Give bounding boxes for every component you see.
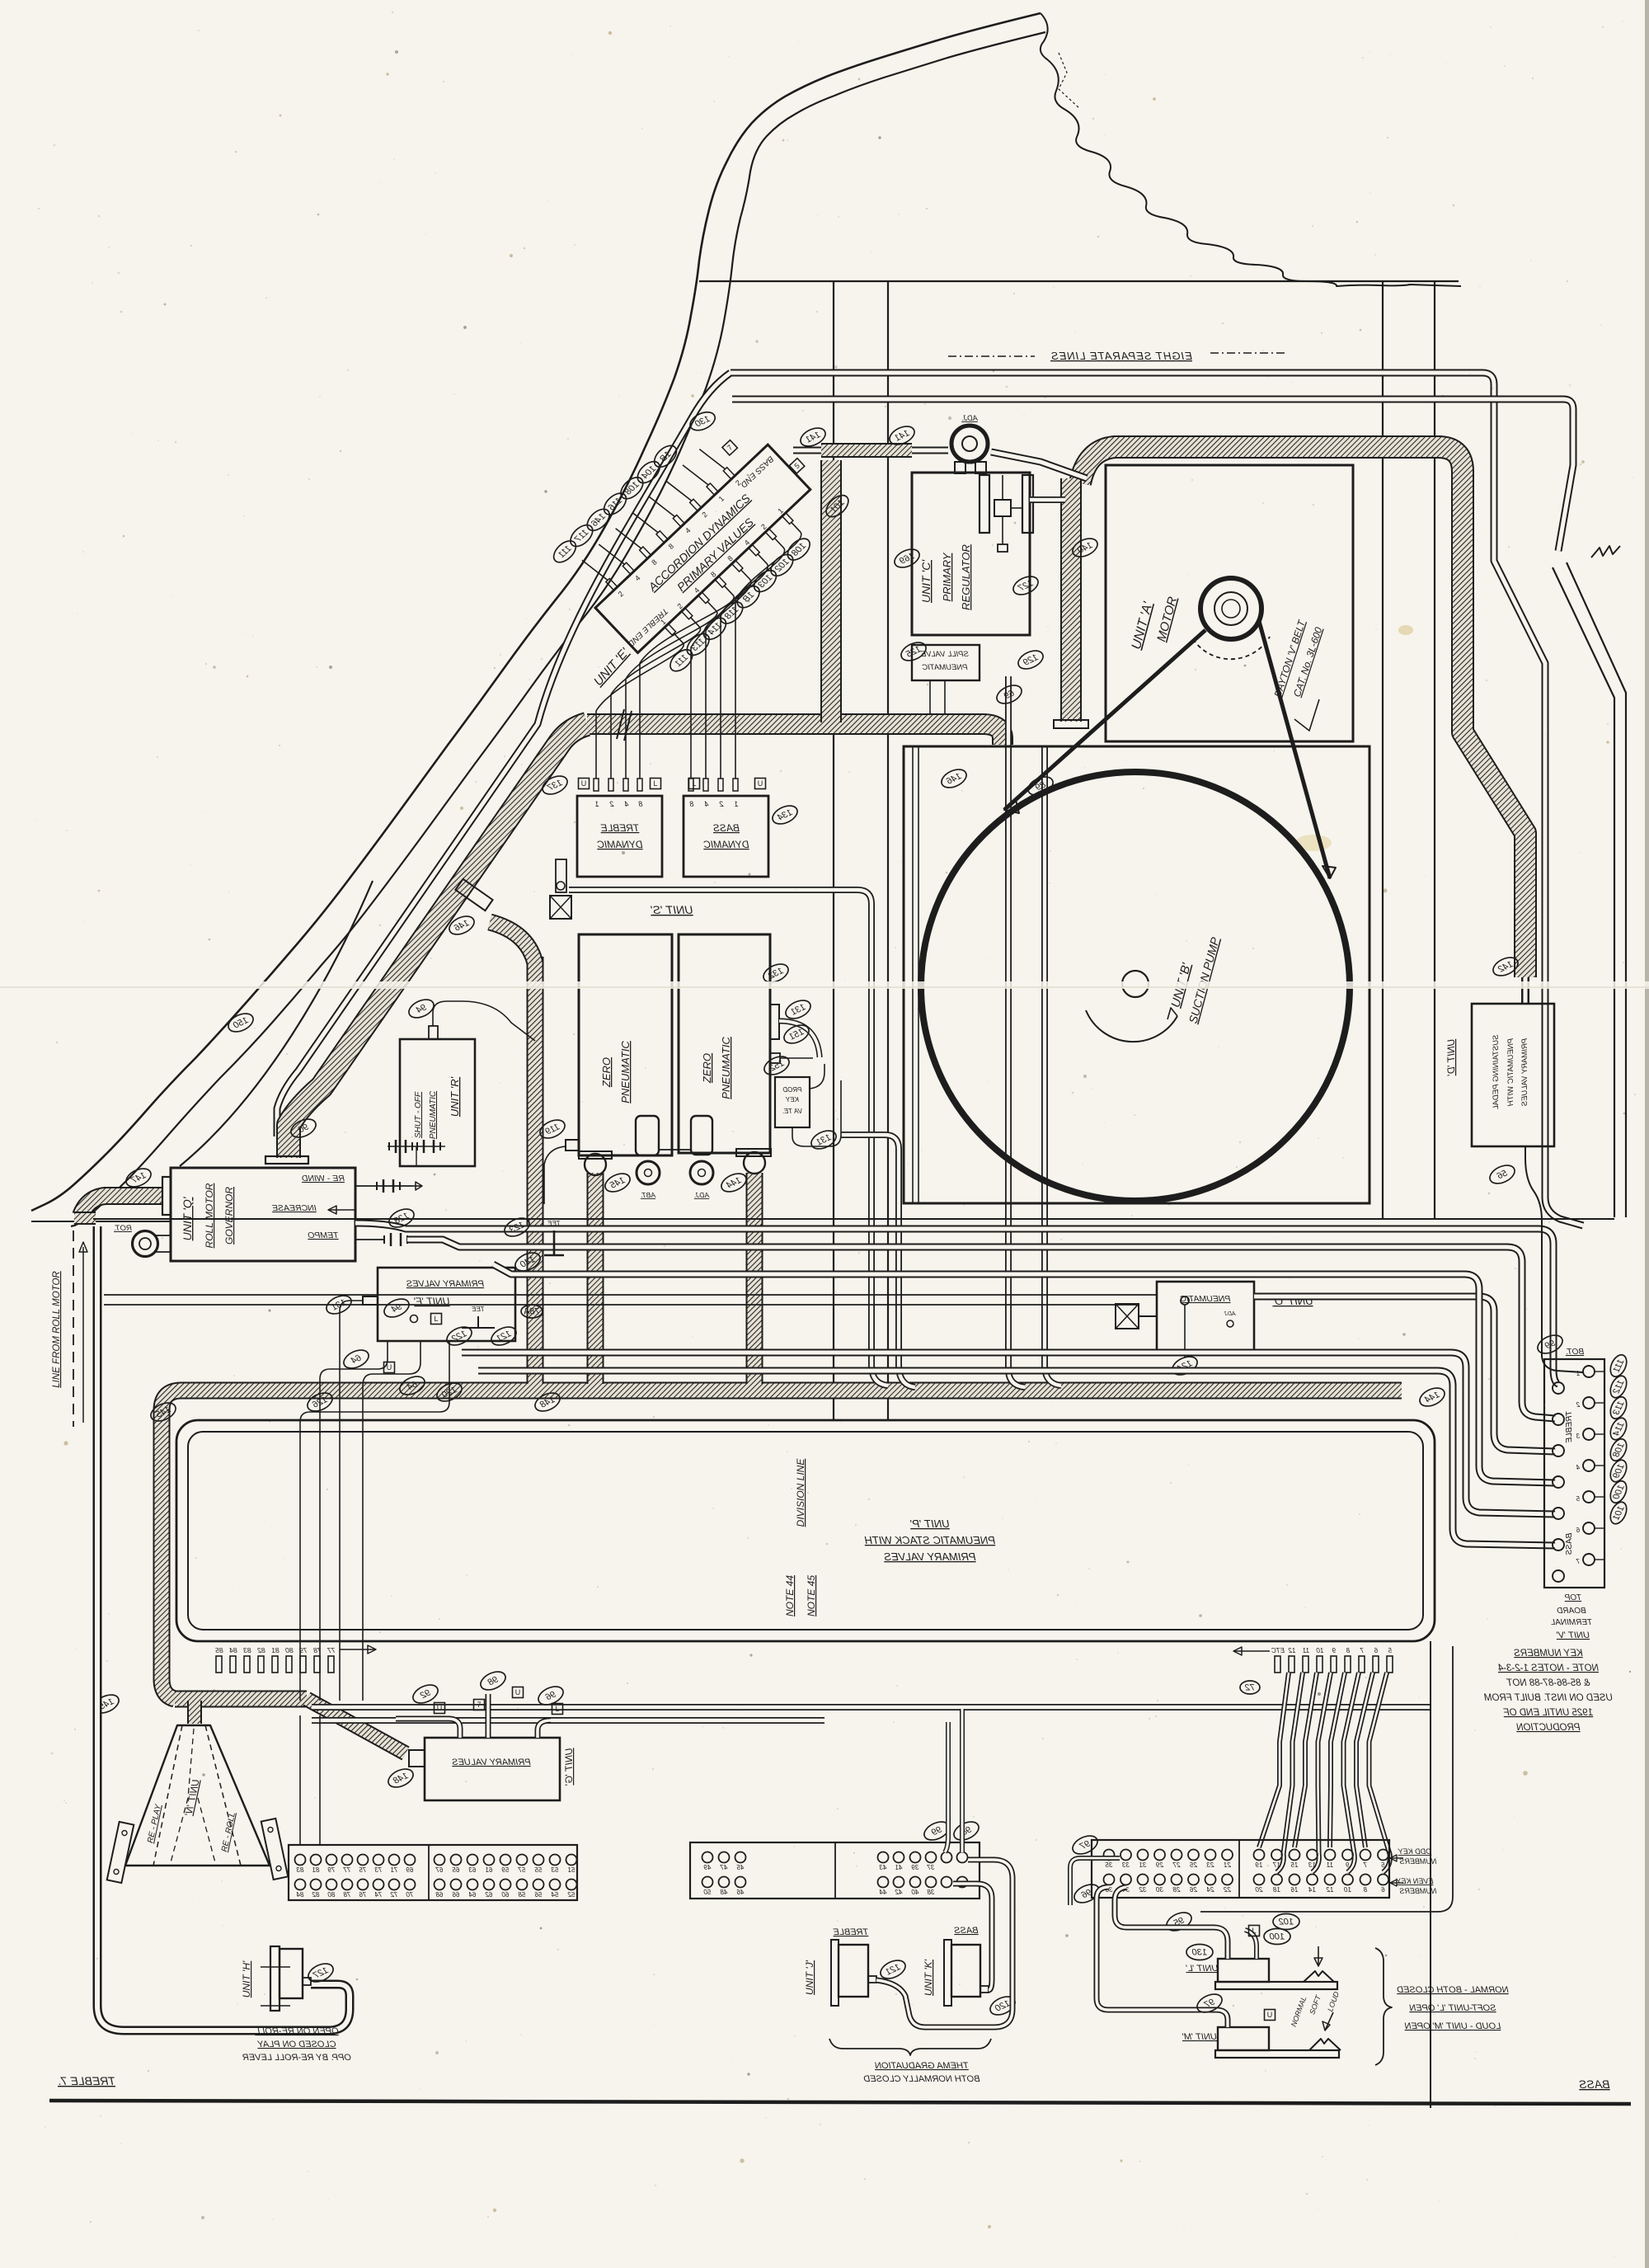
svg-text:ROLL MOTOR: ROLL MOTOR	[204, 1183, 215, 1248]
svg-text:INCREASE: INCREASE	[271, 1203, 317, 1213]
svg-text:9: 9	[1332, 1647, 1336, 1654]
svg-text:53: 53	[551, 1866, 558, 1874]
svg-text:72: 72	[1245, 1683, 1255, 1693]
svg-text:REGULATOR: REGULATOR	[960, 544, 972, 610]
svg-text:79: 79	[299, 1646, 308, 1654]
svg-text:31: 31	[1139, 1861, 1147, 1869]
svg-text:8: 8	[689, 800, 693, 808]
svg-text:5: 5	[1576, 1495, 1580, 1503]
svg-text:43: 43	[879, 1864, 886, 1871]
svg-text:U: U	[515, 1688, 521, 1696]
svg-text:UNIT 'P': UNIT 'P'	[910, 1517, 950, 1530]
svg-text:66: 66	[452, 1891, 459, 1899]
svg-text:ABT.: ABT.	[641, 1191, 656, 1199]
svg-text:63: 63	[468, 1866, 476, 1874]
svg-text:UNIT 'V': UNIT 'V'	[1556, 1630, 1590, 1640]
svg-text:PRIMARY VALVES: PRIMARY VALVES	[406, 1279, 484, 1289]
svg-text:78: 78	[343, 1891, 350, 1899]
svg-text:TEMPO: TEMPO	[308, 1230, 338, 1240]
svg-text:13: 13	[1308, 1861, 1316, 1869]
svg-text:68: 68	[435, 1891, 443, 1899]
svg-text:61: 61	[486, 1866, 493, 1874]
svg-text:UNIT 'C': UNIT 'C'	[919, 559, 933, 603]
svg-text:L: L	[555, 1705, 559, 1713]
svg-text:NOTE - NOTES 1-2-3-4: NOTE - NOTES 1-2-3-4	[1498, 1663, 1599, 1673]
svg-text:72: 72	[390, 1891, 397, 1899]
svg-text:24: 24	[1206, 1886, 1214, 1894]
svg-text:U: U	[581, 779, 587, 788]
svg-text:12: 12	[1288, 1647, 1295, 1654]
svg-text:60: 60	[501, 1891, 509, 1899]
svg-text:4: 4	[624, 800, 628, 808]
svg-text:56: 56	[534, 1891, 542, 1899]
svg-text:EVEN KEY: EVEN KEY	[1396, 1877, 1434, 1885]
svg-text:PNEUMATIC: PNEUMATIC	[619, 1041, 632, 1103]
svg-text:VA TE.: VA TE.	[782, 1108, 803, 1115]
svg-text:85: 85	[215, 1646, 223, 1654]
svg-text:SUSTAINING PEDAL: SUSTAINING PEDAL	[1492, 1034, 1501, 1109]
svg-text:2: 2	[609, 800, 614, 808]
svg-text:82: 82	[312, 1891, 319, 1899]
svg-text:28: 28	[1172, 1886, 1181, 1894]
svg-text:20: 20	[1255, 1886, 1263, 1894]
svg-text:100: 100	[1269, 1932, 1285, 1942]
svg-text:8: 8	[638, 800, 642, 808]
svg-text:32: 32	[1139, 1886, 1146, 1894]
svg-text:TREBLE 7.: TREBLE 7.	[58, 2074, 115, 2087]
svg-text:65: 65	[452, 1866, 459, 1874]
svg-text:UNIT 'K': UNIT 'K'	[923, 1959, 934, 1996]
svg-text:7: 7	[1363, 1861, 1367, 1869]
svg-text:RE - WIND: RE - WIND	[302, 1174, 345, 1183]
svg-text:81: 81	[271, 1646, 280, 1654]
svg-text:15: 15	[1290, 1861, 1298, 1869]
svg-text:82: 82	[257, 1646, 265, 1654]
svg-text:58: 58	[518, 1891, 525, 1899]
svg-text:83: 83	[296, 1866, 303, 1874]
svg-text:81: 81	[312, 1866, 320, 1874]
svg-text:41: 41	[895, 1864, 903, 1871]
svg-text:UNIT 'D': UNIT 'D'	[1445, 1039, 1457, 1076]
svg-text:45: 45	[736, 1864, 744, 1871]
svg-text:DYNAMIC: DYNAMIC	[597, 839, 643, 850]
svg-text:BASS: BASS	[713, 822, 740, 834]
svg-text:76: 76	[359, 1891, 366, 1899]
svg-text:35: 35	[1105, 1861, 1112, 1869]
svg-text:25: 25	[1190, 1861, 1198, 1869]
svg-text:130: 130	[1191, 1948, 1207, 1958]
svg-text:ADJ: ADJ	[1224, 1311, 1237, 1317]
svg-text:80: 80	[285, 1646, 294, 1654]
svg-text:PRODUCTION: PRODUCTION	[1516, 1723, 1581, 1733]
svg-text:EIGHT SEPARATE LINES: EIGHT SEPARATE LINES	[1050, 350, 1192, 362]
svg-text:38: 38	[927, 1889, 934, 1896]
svg-text:BOTH NORMALLY CLOSED: BOTH NORMALLY CLOSED	[863, 2074, 980, 2084]
svg-text:KEY: KEY	[785, 1096, 799, 1103]
svg-text:16: 16	[1290, 1886, 1298, 1894]
svg-text:BOARD: BOARD	[1557, 1607, 1586, 1616]
svg-text:52: 52	[567, 1891, 575, 1899]
svg-text:U: U	[758, 779, 763, 788]
svg-text:NORMAL - BOTH CLOSED: NORMAL - BOTH CLOSED	[1397, 1985, 1509, 1995]
svg-text:PRIMARY VALVES: PRIMARY VALVES	[884, 1550, 976, 1563]
svg-text:ZERO: ZERO	[701, 1053, 713, 1084]
svg-text:PNEUMATIC: PNEUMATIC	[429, 1090, 438, 1139]
svg-text:BASS: BASS	[1579, 2077, 1610, 2091]
svg-text:4: 4	[704, 800, 708, 808]
svg-text:7: 7	[477, 1701, 481, 1709]
svg-text:UNIT 'L': UNIT 'L'	[1186, 1964, 1219, 1974]
svg-text:UNIT 'G': UNIT 'G'	[563, 1748, 575, 1786]
svg-text:TREBLE: TREBLE	[833, 1927, 868, 1937]
svg-text:69: 69	[406, 1866, 413, 1874]
svg-text:48: 48	[720, 1889, 727, 1896]
svg-text:DIVISION LINE: DIVISION LINE	[795, 1458, 806, 1527]
svg-text:1: 1	[1576, 1370, 1580, 1377]
svg-text:UNIT 'R': UNIT 'R'	[449, 1076, 461, 1117]
svg-text:51: 51	[568, 1866, 576, 1874]
svg-text:UNIT 'J': UNIT 'J'	[804, 1960, 815, 1995]
svg-text:6: 6	[1576, 1527, 1580, 1534]
svg-text:2: 2	[1576, 1401, 1581, 1409]
svg-text:8: 8	[1363, 1886, 1367, 1894]
svg-text:GOVERNOR: GOVERNOR	[223, 1187, 235, 1245]
svg-text:PNEUMATIC: PNEUMATIC	[1180, 1294, 1230, 1304]
svg-text:10: 10	[1344, 1886, 1351, 1894]
svg-text:27: 27	[1172, 1861, 1181, 1869]
svg-text:TOP: TOP	[1564, 1593, 1581, 1602]
svg-text:PNEUMATIC WITH: PNEUMATIC WITH	[1506, 1038, 1515, 1106]
svg-text:UNIT 'S': UNIT 'S'	[650, 903, 693, 916]
svg-text:77: 77	[327, 1646, 336, 1654]
svg-text:ZERO: ZERO	[600, 1057, 613, 1088]
svg-text:L: L	[692, 779, 696, 788]
svg-text:21: 21	[1224, 1861, 1232, 1869]
svg-text:83: 83	[243, 1646, 251, 1654]
svg-text:3: 3	[1576, 1433, 1580, 1440]
svg-text:PRIMARY: PRIMARY	[941, 552, 953, 601]
svg-text:DYNAMIC: DYNAMIC	[703, 839, 749, 850]
svg-text:67: 67	[435, 1866, 443, 1874]
svg-text:ADJ.: ADJ.	[961, 414, 979, 422]
svg-text:42: 42	[895, 1889, 902, 1896]
svg-text:5: 5	[1381, 1861, 1385, 1869]
svg-text:37: 37	[927, 1864, 934, 1871]
svg-text:PRIMARY VALUES: PRIMARY VALUES	[452, 1757, 531, 1767]
svg-text:79: 79	[327, 1866, 335, 1874]
svg-text:14: 14	[1308, 1886, 1316, 1894]
svg-text:PROD: PROD	[782, 1086, 801, 1094]
svg-text:11: 11	[1327, 1861, 1333, 1869]
svg-text:OPEN ON RE-ROLL: OPEN ON RE-ROLL	[255, 2026, 338, 2036]
svg-text:L: L	[434, 1315, 438, 1323]
svg-text:U: U	[437, 1704, 443, 1712]
svg-text:26: 26	[1190, 1886, 1198, 1894]
svg-text:19: 19	[1255, 1861, 1262, 1869]
svg-text:8: 8	[1346, 1647, 1350, 1654]
svg-text:33: 33	[1122, 1861, 1130, 1869]
svg-text:ODD KEY: ODD KEY	[1398, 1847, 1432, 1856]
svg-text:SPILL VALVE: SPILL VALVE	[920, 650, 969, 659]
svg-text:TERMINAL: TERMINAL	[1551, 1618, 1593, 1627]
svg-text:10: 10	[1316, 1647, 1323, 1654]
svg-text:64: 64	[468, 1891, 476, 1899]
svg-text:PRIMARY VALUES: PRIMARY VALUES	[1520, 1038, 1529, 1107]
svg-text:74: 74	[374, 1891, 382, 1899]
svg-text:73: 73	[374, 1866, 382, 1874]
svg-text:SHUT - OFF: SHUT - OFF	[414, 1091, 423, 1138]
svg-text:SOFT-UNIT 'L' OPEN: SOFT-UNIT 'L' OPEN	[1409, 2003, 1496, 2013]
svg-text:11: 11	[1303, 1647, 1309, 1654]
svg-text:18: 18	[1273, 1886, 1280, 1894]
svg-text:71: 71	[391, 1866, 398, 1874]
svg-text:47: 47	[720, 1864, 727, 1871]
svg-text:PNEUMATIC: PNEUMATIC	[720, 1037, 732, 1099]
svg-text:57: 57	[518, 1866, 525, 1874]
svg-text:50: 50	[703, 1889, 711, 1896]
svg-text:BOT.: BOT.	[1566, 1348, 1584, 1357]
svg-text:7: 7	[1360, 1647, 1364, 1654]
svg-text:49: 49	[703, 1864, 711, 1871]
svg-text:22: 22	[1224, 1886, 1232, 1894]
svg-text:ETC: ETC	[1271, 1647, 1285, 1654]
svg-text:29: 29	[1156, 1861, 1164, 1869]
svg-text:84: 84	[296, 1891, 303, 1899]
svg-text:23: 23	[1206, 1861, 1214, 1869]
svg-text:70: 70	[406, 1891, 413, 1899]
svg-text:78: 78	[313, 1646, 322, 1654]
svg-text:UNIT 'H': UNIT 'H'	[241, 1960, 252, 1997]
svg-text:59: 59	[501, 1866, 509, 1874]
svg-text:PNEUMATIC: PNEUMATIC	[922, 663, 967, 672]
svg-text:78A: 78A	[524, 1307, 540, 1317]
svg-text:102: 102	[1279, 1917, 1294, 1927]
svg-text:12: 12	[1326, 1886, 1333, 1894]
svg-text:LOUD - UNIT 'M' OPEN: LOUD - UNIT 'M' OPEN	[1405, 2021, 1501, 2031]
svg-text:U: U	[1267, 2011, 1273, 2019]
svg-text:& 85-86-87-88 NOT: & 85-86-87-88 NOT	[1506, 1678, 1590, 1688]
svg-text:4: 4	[1576, 1464, 1580, 1471]
svg-text:9: 9	[1346, 1861, 1350, 1869]
svg-text:KEY NUMBERS: KEY NUMBERS	[1514, 1649, 1583, 1659]
svg-text:THEMA GRADUATION: THEMA GRADUATION	[875, 2061, 969, 2071]
svg-text:ROT.: ROT.	[114, 1224, 132, 1233]
svg-text:BASS: BASS	[954, 1926, 979, 1936]
svg-text:17: 17	[1273, 1861, 1280, 1869]
svg-text:84: 84	[229, 1646, 237, 1654]
svg-text:75: 75	[359, 1866, 366, 1874]
svg-text:NOTE 44: NOTE 44	[784, 1575, 796, 1616]
svg-text:TEE: TEE	[547, 1220, 561, 1227]
svg-text:62: 62	[485, 1891, 492, 1899]
svg-text:6: 6	[1381, 1886, 1385, 1894]
svg-text:BASS: BASS	[1565, 1533, 1574, 1555]
svg-text:USED ON INST. BUILT FROM: USED ON INST. BUILT FROM	[1484, 1693, 1613, 1703]
svg-text:CLOSED ON PLAY: CLOSED ON PLAY	[257, 2040, 336, 2049]
svg-text:ADJ.: ADJ.	[694, 1191, 710, 1199]
svg-text:LINE FROM ROLL MOTOR: LINE FROM ROLL MOTOR	[52, 1271, 62, 1387]
svg-text:1925 UNTIL END OF: 1925 UNTIL END OF	[1503, 1708, 1593, 1718]
svg-text:TEE: TEE	[472, 1306, 485, 1313]
svg-text:46: 46	[736, 1889, 744, 1896]
svg-text:TREBLE: TREBLE	[1565, 1411, 1574, 1443]
svg-text:UNIT 'F': UNIT 'F'	[414, 1296, 450, 1307]
svg-text:7: 7	[1576, 1558, 1580, 1565]
svg-text:OPP. BY RE-ROLL LEVER: OPP. BY RE-ROLL LEVER	[242, 2053, 351, 2063]
svg-text:39: 39	[911, 1864, 918, 1871]
svg-text:55: 55	[534, 1866, 542, 1874]
svg-text:2: 2	[719, 800, 724, 808]
svg-text:54: 54	[551, 1891, 558, 1899]
svg-text:6: 6	[1374, 1647, 1378, 1654]
svg-text:44: 44	[879, 1889, 886, 1896]
svg-text:30: 30	[1156, 1886, 1163, 1894]
svg-text:UNIT 'M': UNIT 'M'	[1182, 2032, 1217, 2042]
svg-text:U: U	[387, 1363, 392, 1372]
svg-text:NOTE 45: NOTE 45	[806, 1575, 817, 1616]
svg-text:77: 77	[343, 1866, 350, 1874]
svg-text:1: 1	[734, 800, 738, 808]
svg-text:L: L	[1252, 1927, 1256, 1935]
svg-text:TREBLE: TREBLE	[600, 822, 640, 834]
svg-text:PNEUMATIC STACK WITH: PNEUMATIC STACK WITH	[864, 1534, 995, 1546]
svg-text:80: 80	[327, 1891, 335, 1899]
svg-text:1: 1	[594, 800, 599, 808]
svg-text:L: L	[653, 779, 657, 788]
svg-text:40: 40	[911, 1889, 918, 1896]
svg-text:5: 5	[1388, 1647, 1392, 1654]
